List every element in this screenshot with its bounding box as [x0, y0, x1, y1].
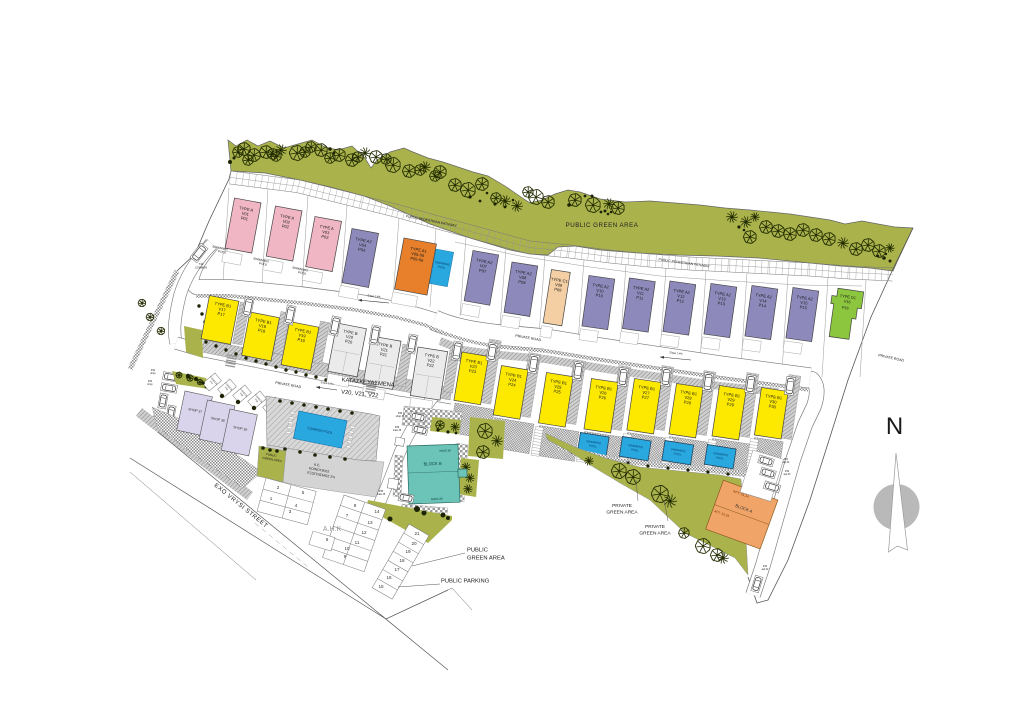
svg-text:PUBLIC: PUBLIC — [467, 548, 488, 554]
svg-text:GREEN AREA: GREEN AREA — [467, 556, 505, 562]
svg-text:MAIS 36: MAIS 36 — [439, 448, 451, 452]
svg-text:17: 17 — [394, 567, 400, 572]
svg-text:V16: V16 — [843, 299, 851, 305]
svg-text:10: 10 — [344, 546, 350, 551]
svg-text:PUBLIC GREEN AREA: PUBLIC GREEN AREA — [566, 222, 639, 229]
svg-text:11: 11 — [355, 540, 360, 545]
svg-text:13: 13 — [367, 520, 373, 525]
svg-text:T44: T44 — [199, 262, 204, 266]
svg-text:mais 36: mais 36 — [393, 429, 402, 432]
svg-text:18: 18 — [399, 558, 405, 563]
svg-text:MAIS 35: MAIS 35 — [431, 497, 443, 501]
svg-text:7: 7 — [346, 513, 349, 518]
svg-text:shop: shop — [150, 372, 156, 375]
svg-text:14: 14 — [374, 509, 380, 514]
svg-text:PRIVATE: PRIVATE — [645, 524, 665, 530]
svg-text:N: N — [886, 413, 903, 440]
svg-text:5: 5 — [302, 490, 305, 495]
svg-text:GREEN AREA: GREEN AREA — [639, 531, 671, 537]
svg-text:A.H.K: A.H.K — [323, 526, 342, 533]
svg-text:GREEN AREA: GREEN AREA — [606, 510, 638, 516]
svg-text:19: 19 — [405, 549, 411, 554]
svg-text:apt.34: apt.34 — [783, 461, 790, 464]
svg-text:mais 35: mais 35 — [377, 493, 386, 496]
svg-text:9: 9 — [344, 554, 347, 559]
svg-text:PUBLIC PARKING: PUBLIC PARKING — [441, 579, 490, 585]
svg-text:COMMON: COMMON — [195, 265, 207, 269]
svg-text:shop 39: shop 39 — [396, 415, 405, 418]
svg-text:3: 3 — [289, 509, 292, 514]
svg-text:apt.32: apt.32 — [762, 568, 769, 571]
svg-text:12: 12 — [361, 530, 367, 535]
svg-text:BLOCK B: BLOCK B — [423, 461, 442, 467]
svg-text:4: 4 — [295, 503, 298, 508]
svg-text:apt.33: apt.33 — [784, 473, 791, 476]
svg-text:15: 15 — [378, 584, 384, 589]
svg-text:21: 21 — [414, 531, 420, 536]
svg-text:PRIVATE: PRIVATE — [612, 503, 632, 509]
svg-text:20: 20 — [411, 541, 417, 546]
svg-text:1: 1 — [270, 496, 273, 501]
svg-text:shop: shop — [147, 383, 153, 386]
svg-text:6: 6 — [326, 537, 329, 542]
svg-text:2: 2 — [277, 485, 280, 490]
svg-text:8: 8 — [354, 503, 357, 508]
svg-text:16: 16 — [386, 575, 392, 580]
